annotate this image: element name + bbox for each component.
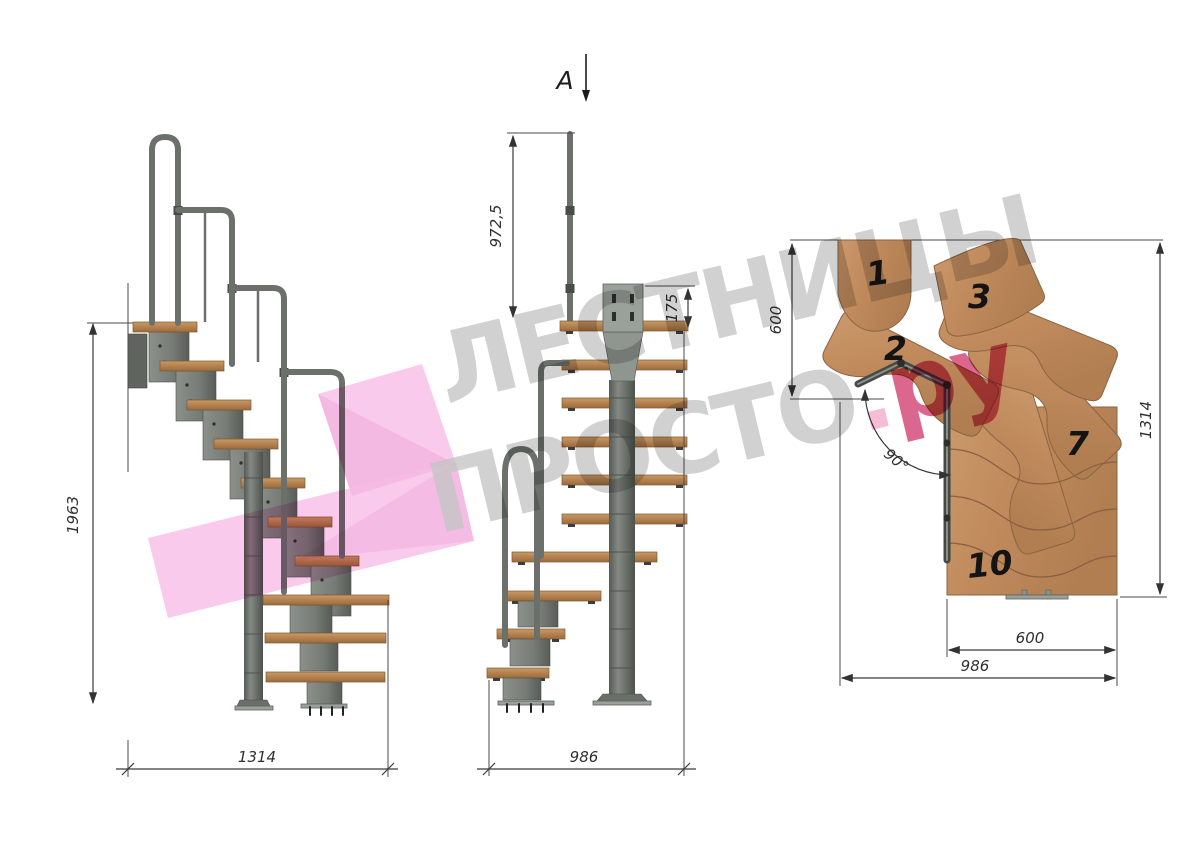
side-total-height-label: 1963 [64,496,82,534]
section-label: A [554,66,573,95]
plan-length-label: 1314 [1137,401,1155,439]
plan-step-number-7: 7 [1066,424,1089,463]
plan-dimension-length: 1314 [1120,243,1167,597]
drawing-canvas: 1963 [0,0,1200,849]
wall-bracket [128,334,147,388]
section-mark-a: A [554,54,590,102]
side-total-length-label: 1314 [238,748,276,766]
plan-flight-width-label: 600 [1016,629,1045,647]
handrail-loop [152,137,178,323]
side-lower-steps [263,595,389,715]
staircase-technical-drawing: 1963 [0,0,1200,849]
plan-width-label: 986 [961,657,990,675]
front-rail-height-label: 972,5 [487,205,505,248]
plan-step-number-10: 10 [965,542,1015,586]
front-width-label: 986 [570,748,599,766]
section-arrow-icon [582,90,590,102]
